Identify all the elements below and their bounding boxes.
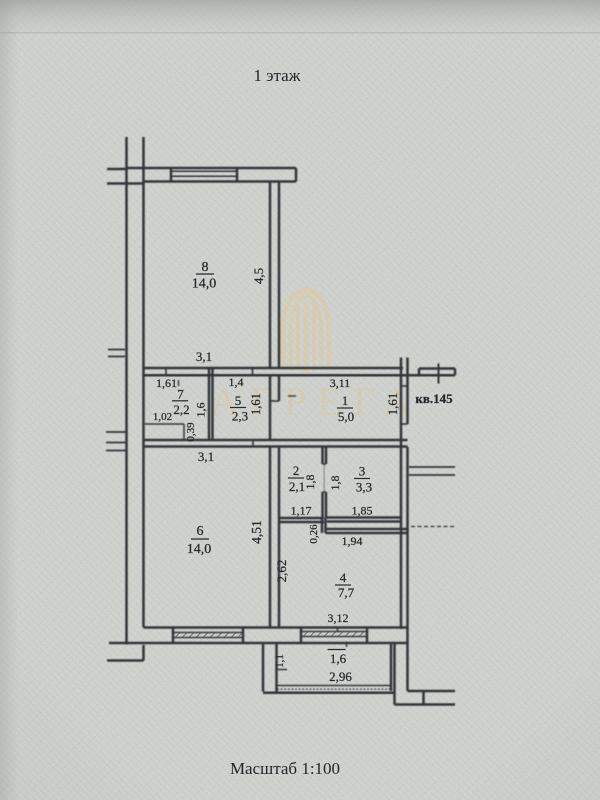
svg-text:1,85: 1,85 (352, 504, 373, 518)
svg-text:3,1: 3,1 (198, 449, 214, 464)
svg-text:5,0: 5,0 (338, 409, 354, 424)
svg-text:6: 6 (197, 524, 204, 539)
svg-text:2,2: 2,2 (173, 402, 189, 417)
svg-text:1,94: 1,94 (342, 534, 363, 548)
svg-text:1,8: 1,8 (328, 476, 342, 491)
svg-text:2,96: 2,96 (329, 669, 352, 684)
svg-text:14,0: 14,0 (187, 542, 212, 557)
svg-text:7: 7 (177, 387, 184, 402)
svg-text:0,39: 0,39 (185, 422, 197, 442)
svg-text:1,6: 1,6 (330, 651, 347, 666)
svg-text:1,1: 1,1 (274, 654, 286, 668)
svg-text:5: 5 (235, 393, 242, 408)
svg-text:1 этаж: 1 этаж (254, 66, 301, 85)
svg-text:14,0: 14,0 (192, 277, 217, 292)
svg-text:кв.145: кв.145 (415, 391, 453, 406)
svg-text:1,4: 1,4 (229, 375, 244, 389)
svg-text:3,11: 3,11 (330, 376, 351, 390)
svg-text:2,3: 2,3 (232, 409, 248, 424)
svg-text:7,7: 7,7 (338, 585, 355, 600)
svg-text:1,61: 1,61 (249, 393, 263, 415)
svg-text:1,02: 1,02 (153, 411, 172, 423)
svg-text:1,6: 1,6 (194, 403, 208, 418)
svg-text:4: 4 (340, 570, 347, 585)
svg-text:4,5: 4,5 (251, 268, 266, 284)
svg-text:2: 2 (293, 463, 300, 478)
svg-text:1,17: 1,17 (291, 504, 312, 518)
svg-text:1: 1 (342, 393, 349, 408)
svg-text:8: 8 (202, 260, 209, 275)
svg-text:1,61: 1,61 (385, 393, 400, 416)
svg-text:1,8: 1,8 (303, 475, 317, 490)
svg-text:3,3: 3,3 (356, 480, 372, 495)
svg-text:4,51: 4,51 (249, 520, 264, 544)
svg-text:2,62: 2,62 (274, 560, 289, 583)
svg-text:1,61: 1,61 (156, 376, 177, 390)
svg-text:0,26: 0,26 (308, 524, 320, 544)
svg-text:3,1: 3,1 (196, 349, 212, 364)
svg-text:3,12: 3,12 (328, 611, 349, 625)
svg-text:Масштаб 1:100: Масштаб 1:100 (230, 759, 340, 778)
svg-text:3: 3 (359, 464, 366, 479)
